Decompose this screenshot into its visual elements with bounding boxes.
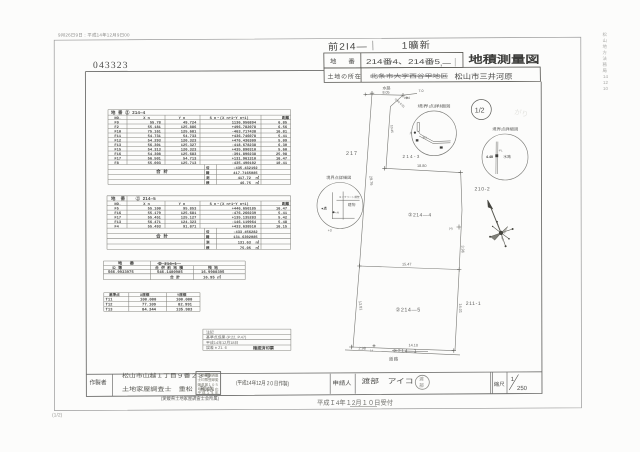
svg-text:14: 14 [370,348,374,352]
svg-text:T13: T13 [106,308,114,313]
svg-text:倍: 倍 [205,166,210,171]
svg-text:F5 55.100: F5 55.100 95.853 +446.650185 16.47 [110,206,287,211]
svg-text:12: 12 [603,80,608,85]
svg-text:土地家屋調査: 土地家屋調査 [198,373,219,378]
svg-text:倍: 倍 [205,230,210,235]
svg-text:境界点詳細図: 境界点詳細図 [492,127,518,132]
svg-text:,—｜: ,—｜ [440,58,459,68]
svg-text:15.47: 15.47 [402,262,412,266]
svg-text:+点: +点 [335,211,340,215]
svg-text:積: 積 [205,246,210,251]
svg-text:3.96: 3.96 [461,245,465,253]
svg-text:2.98: 2.98 [359,347,366,351]
svg-text:10: 10 [603,86,608,91]
svg-text:14: 14 [603,74,608,79]
svg-text:②214—1: ②214—1 [393,349,418,355]
svg-text:(平成14年12月 2０日作製): (平成14年12月 2０日作製) [236,380,289,388]
svg-text:210-2: 210-2 [475,187,491,193]
svg-text:F13 56.471: F13 56.471 124.323 -146.119964 5.48 [110,220,288,225]
svg-text:地: 地 [603,44,608,49]
svg-text:1.40: 1.40 [404,96,410,100]
svg-text:546.1400985: 546.1400985 [157,270,183,275]
svg-text:211-1: 211-1 [466,301,481,307]
svg-text:土地の所在: 土地の所在 [328,73,362,81]
svg-text:松: 松 [603,32,608,37]
svg-text:部: 部 [419,383,424,388]
svg-text:F13 56.301: F13 56.301 125.327 -418.678238 6.30 [110,143,287,148]
svg-text:-435.432192: -435.432192 [220,166,258,171]
svg-text:F17 56.501: F17 56.501 54.713 +131.961310 16.47 [110,156,287,161]
svg-text:境界点詳細図: 境界点詳細図 [418,103,451,108]
svg-text:T12: T12 [106,303,114,308]
svg-text:地 番 ② 214—4: 地 番 ② 214—4 [111,110,146,116]
svg-text:基準点成果 (P.22, P.47): 基準点成果 (P.22, P.47) [206,335,247,340]
svg-text:417.7165085: 417.7165085 [220,171,258,176]
svg-text:F2 55.181: F2 55.181 125.886 +496.782078 6.56 [110,125,287,130]
svg-text:77.109: 77.109 [142,303,157,308]
svg-text:渡: 渡 [419,377,424,382]
svg-text:法: 法 [603,56,608,61]
svg-text:84.344: 84.344 [142,308,157,313]
svg-text:誤差 ± 21. 6: 誤差 ± 21. 6 [206,345,227,350]
svg-text:F16 55.179: F16 55.179 125.681 -476.260239 5.41 [110,211,288,216]
svg-text:F12 54.293: F12 54.293 120.323 +476.436309 5.09 [110,138,287,143]
svg-text:566.9933975: 566.9933975 [108,270,134,275]
svg-text:②214—5: ②214—5 [396,308,421,314]
svg-text:F9 55.78: F9 55.78 49.724 1136.956894 6.85 [110,120,288,125]
svg-text:8.05: 8.05 [383,91,390,95]
svg-text:+3: +3 [328,229,332,233]
svg-text:方: 方 [603,50,608,55]
svg-text:平成14年12月18日: 平成14年12月18日 [206,340,239,345]
svg-text:水1: 水1 [423,135,428,139]
svg-text:14.10: 14.10 [409,344,419,348]
svg-text:F11 54.731: F11 54.731 54.733 +436.746078 5.41 [110,134,288,139]
svg-text:確認済印票: 確認済印票 [252,345,275,350]
svg-text:16.9900395: 16.9900395 [201,270,225,275]
svg-text:131.6392085: 131.6392085 [220,235,258,240]
svg-text:214番4、214番5: 214番4、214番5 [366,58,440,66]
svg-text:合 計: 合 計 [156,232,168,239]
svg-text:(1/2): (1/2) [52,413,63,419]
svg-text:(4): (4) [449,227,453,231]
svg-text:平成Ｉ4年１2月１０日受付: 平成Ｉ4年１2月１０日受付 [317,399,393,407]
svg-text:(愛媛県土地家屋調査士会所属): (愛媛県土地家屋調査士会所属) [161,395,219,402]
svg-text:作製者: 作製者 [90,379,107,387]
svg-text:渡部 アイコ: 渡部 アイコ [362,378,414,386]
svg-text:●点: ●点 [321,206,327,210]
svg-text:平成１４年: 平成１４年 [198,390,219,395]
svg-text:F15 54.313: F15 54.313 120.323 +435.890310 5.60 [110,147,287,152]
svg-text:F16 54.308: F16 54.308 125.683 -391.890238 25.98 [110,152,288,157]
svg-text:7.0: 7.0 [419,89,424,93]
svg-text:F10 75.161: F10 75.161 125.681 -463.717438 16.81 [110,129,288,134]
svg-text:F8 55.003: F8 55.003 125.713 -435.490102 10.41 [110,161,288,166]
svg-text:100.000: 100.000 [140,298,157,303]
svg-text:建物: 建物 [348,202,356,207]
svg-text:申請人: 申請人 [333,380,352,387]
svg-text:合 計: 合 計 [156,168,168,175]
svg-text:9月26日9日 : 平成14年12月9日00: 9月26日9日 : 平成14年12月9日00 [58,33,130,38]
svg-text:松山市三井河原: 松山市三井河原 [455,72,513,81]
svg-text:縮尺: 縮尺 [494,381,505,388]
svg-text:217: 217 [346,151,358,157]
svg-text:T11: T11 [106,298,114,303]
svg-text:ヤ1: ヤ1 [499,149,504,153]
svg-text:②214—4: ②214—4 [408,213,432,219]
svg-text:043323: 043323 [93,61,129,71]
svg-text:135.983: 135.983 [176,308,193,313]
svg-text:前2I4—｜ 1曠新: 前2I4—｜ 1曠新 [328,39,431,53]
svg-text:地積測量図: 地積測量図 [469,53,540,66]
svg-text:境界点詳細図: 境界点詳細図 [326,175,351,180]
svg-text:1/2: 1/2 [475,107,485,115]
svg-text:地 番 ② 214—5: 地 番 ② 214—5 [111,196,156,202]
svg-text:コンクリート擺壁: コンクリート擺壁 [339,195,360,199]
svg-text:注記: 注記 [206,329,214,334]
svg-text:積: 積 [205,181,210,186]
svg-text:F4 55.493: F4 55.493 91.871 +433.638510 16.15 [110,224,288,229]
svg-text:14.01: 14.01 [458,303,462,313]
svg-text:水路: 水路 [503,154,511,159]
svg-text:-433.456282: -433.456282 [220,230,258,235]
svg-text:務: 務 [603,62,608,67]
svg-text:214-3: 214-3 [403,154,421,159]
svg-text:媛県第１０５: 媛県第１０５ [198,382,219,387]
svg-text:士印票登録愛: 士印票登録愛 [198,377,219,382]
svg-text:道路: 道路 [389,357,399,362]
svg-text:4.48: 4.48 [486,155,493,159]
svg-text:10.45: 10.45 [390,125,395,133]
svg-text:250: 250 [517,385,528,392]
svg-text:F17 55.451: F17 55.451 125.127 +135.135283 5.42 [110,215,287,220]
svg-text:点: 点 [410,131,413,135]
svg-text:18.80: 18.80 [417,164,427,168]
svg-text:局: 局 [603,68,608,73]
svg-text:山: 山 [603,38,607,43]
svg-text:82.991: 82.991 [178,303,193,308]
svg-text:地番: 地番 [330,58,367,66]
svg-text:100.000: 100.000 [176,298,193,303]
svg-text:㇩ 北条市大字西谷甲地区: ㇩ 北条市大字西谷甲地区 [368,73,449,80]
